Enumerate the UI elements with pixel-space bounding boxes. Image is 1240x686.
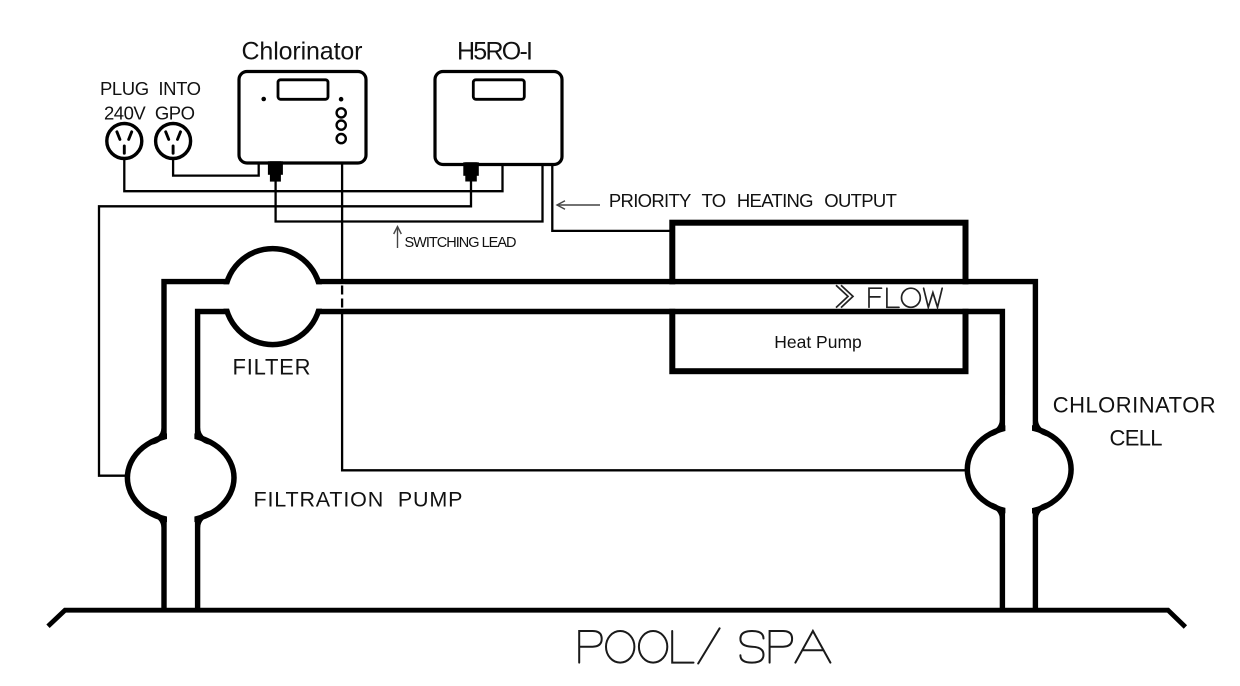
svg-text:H5RO-I: H5RO-I	[457, 38, 533, 66]
svg-text:CELL: CELL	[1110, 425, 1163, 450]
svg-text:SWITCHING LEAD: SWITCHING LEAD	[405, 235, 517, 251]
svg-text:PLUG INTO: PLUG INTO	[100, 78, 201, 99]
svg-text:FILTRATION PUMP: FILTRATION PUMP	[254, 488, 463, 512]
svg-text:240V GPO: 240V GPO	[104, 103, 195, 124]
svg-text:Chlorinator: Chlorinator	[242, 38, 363, 66]
svg-text:PRIORITY TO HEATING OUTPUT: PRIORITY TO HEATING OUTPUT	[609, 190, 897, 211]
svg-text:Heat Pump: Heat Pump	[774, 332, 862, 352]
svg-text:CHLORINATOR: CHLORINATOR	[1053, 393, 1216, 418]
svg-text:FILTER: FILTER	[233, 355, 311, 380]
